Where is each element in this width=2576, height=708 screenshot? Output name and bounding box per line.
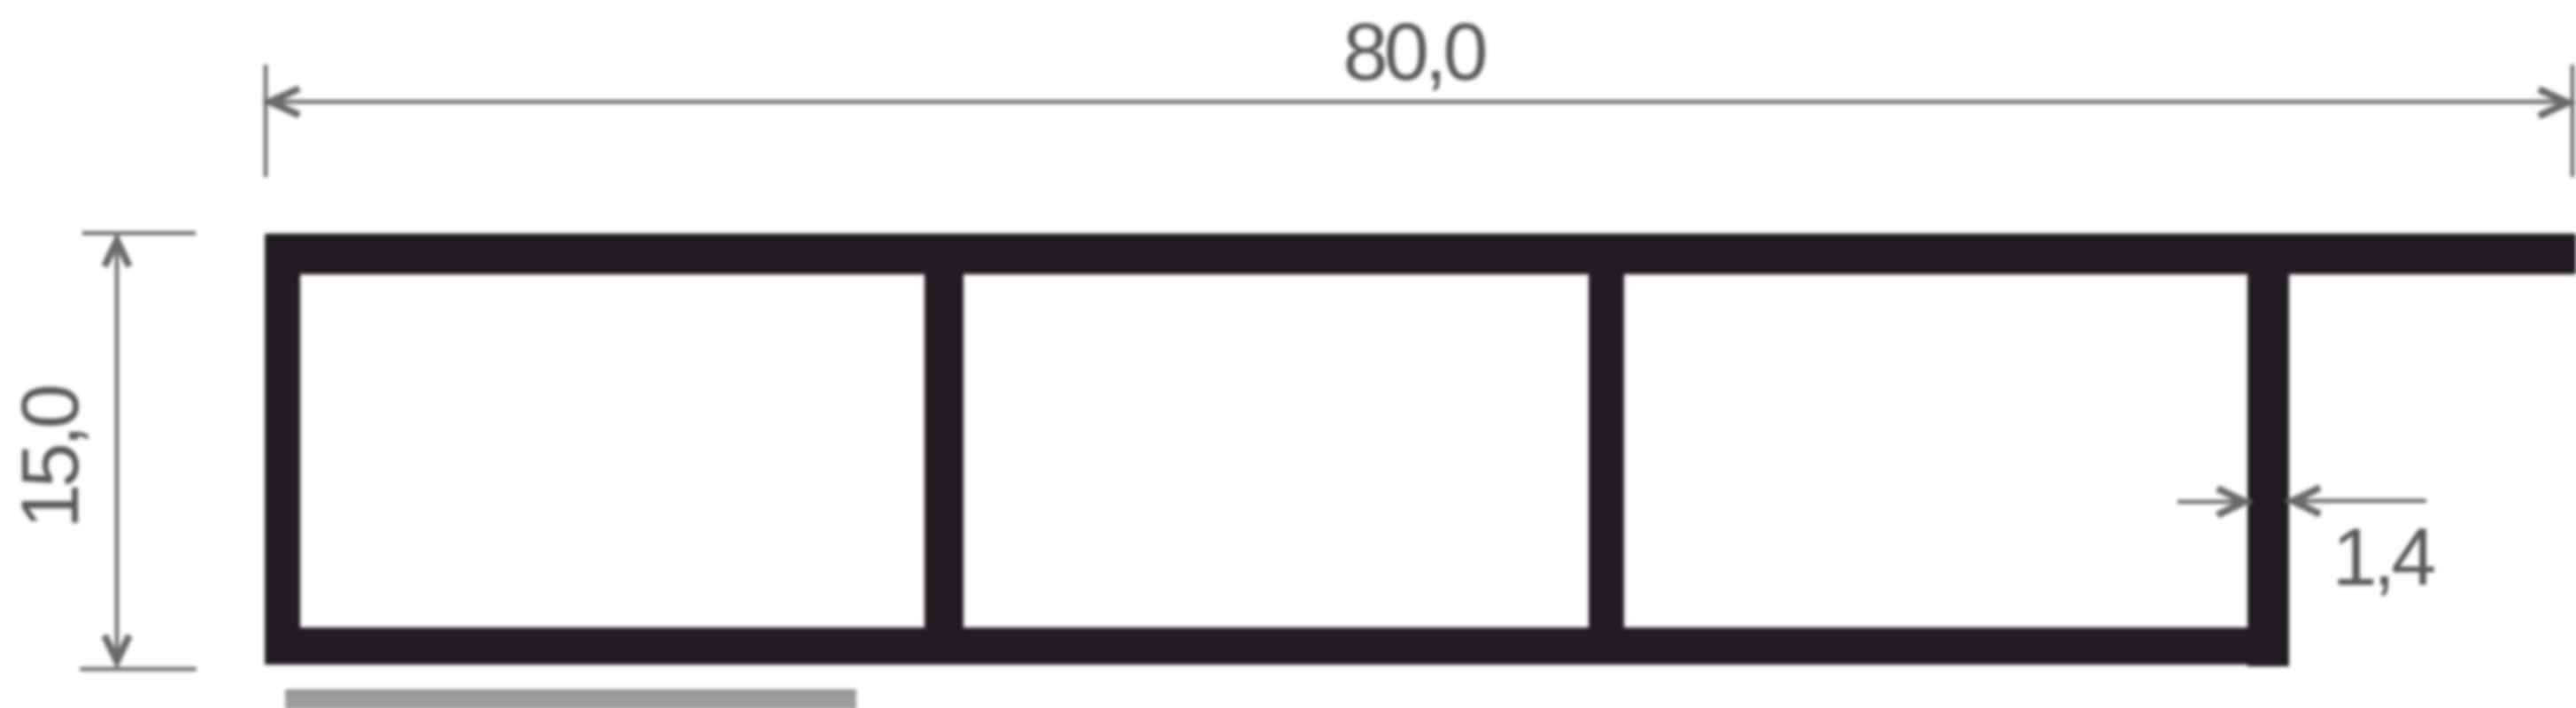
svg-text:15,0: 15,0 [5, 387, 96, 529]
svg-text:1,4: 1,4 [2332, 512, 2435, 603]
svg-text:80,0: 80,0 [1342, 7, 1485, 97]
